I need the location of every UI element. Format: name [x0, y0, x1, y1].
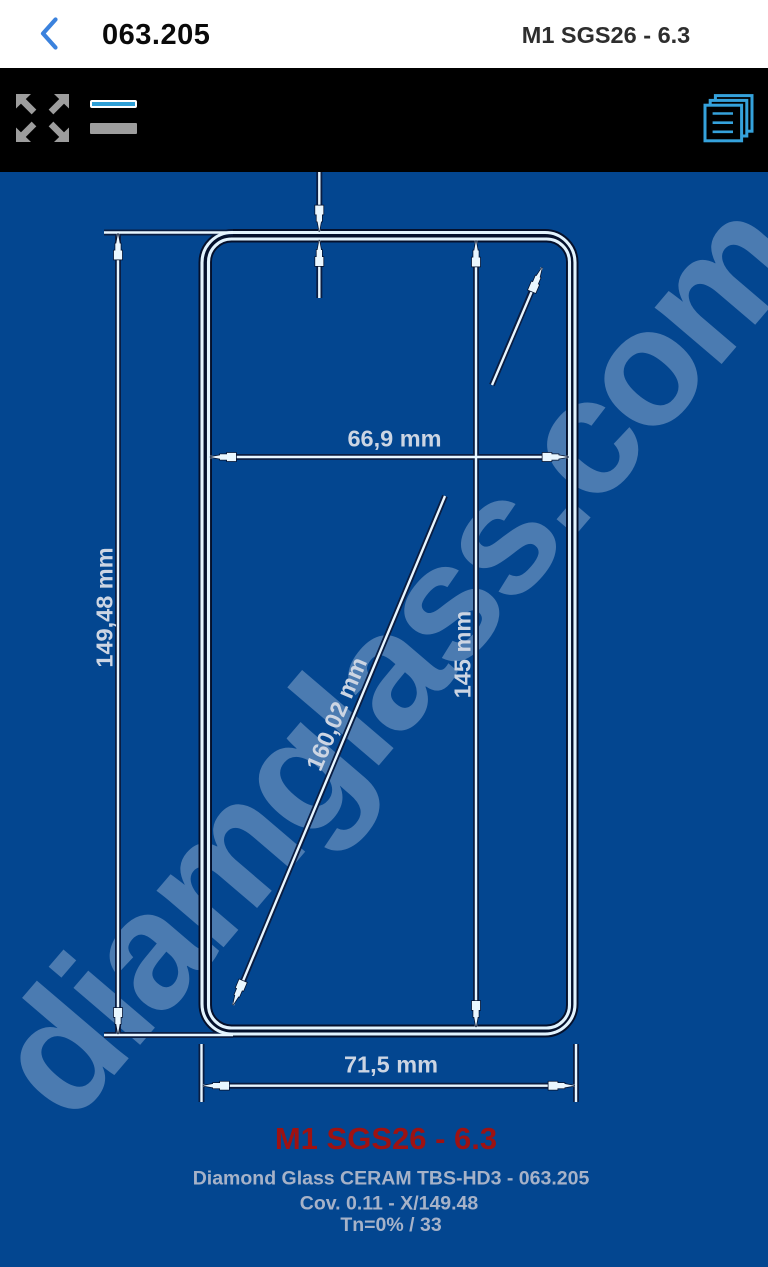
svg-text:145 mm: 145 mm — [450, 611, 476, 699]
svg-text:Tn=0% / 33: Tn=0% / 33 — [340, 1214, 441, 1236]
svg-text:149,48 mm: 149,48 mm — [92, 547, 118, 667]
svg-text:66,9 mm: 66,9 mm — [347, 425, 441, 451]
svg-text:71,5 mm: 71,5 mm — [344, 1052, 438, 1078]
svg-text:Cov. 0.11 - X/149.48: Cov. 0.11 - X/149.48 — [300, 1193, 479, 1215]
svg-text:M1 SGS26 - 6.3: M1 SGS26 - 6.3 — [275, 1121, 497, 1156]
svg-text:Diamond Glass CERAM TBS-HD3 -: Diamond Glass CERAM TBS-HD3 - 063.205 — [193, 1168, 590, 1190]
